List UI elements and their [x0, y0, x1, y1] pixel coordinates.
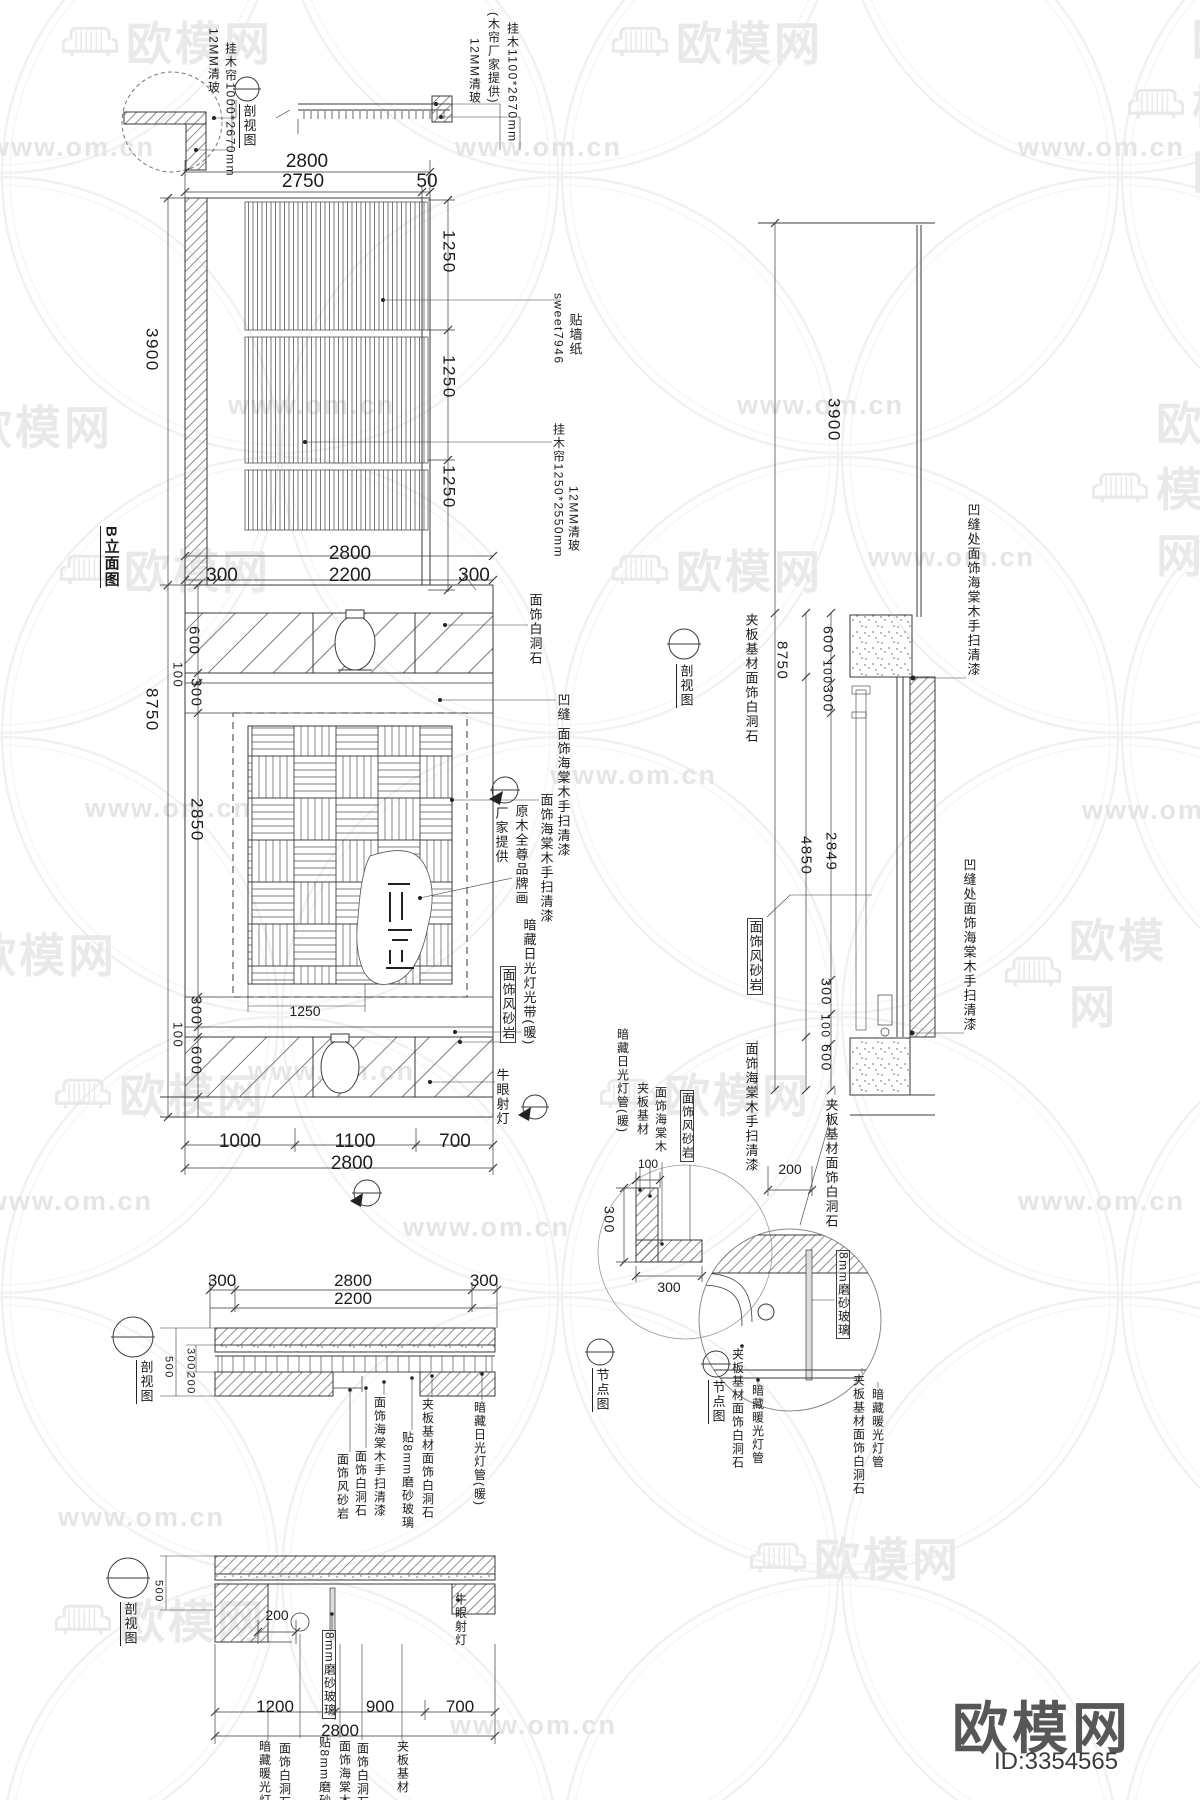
dim: 3900 [143, 328, 161, 372]
glass-label: 12MM清玻 [567, 486, 579, 552]
dim: 300 [206, 566, 238, 586]
material-label: 夹板基材面饰白洞石 [744, 613, 758, 744]
cad-linework [0, 0, 1200, 1800]
dim: 1250 [440, 465, 458, 509]
dim: 500 [152, 1580, 163, 1603]
dim: 300 [821, 685, 836, 713]
material-label: 夹板基材 [396, 1740, 408, 1794]
dim: 8750 [143, 688, 161, 732]
dim: 300 [657, 1280, 680, 1295]
artwork-vendor-label: 厂家提供 [494, 806, 508, 864]
glass-label: 12MM清玻 [207, 28, 219, 94]
material-label: 夹板基材面饰白洞石 [731, 1348, 743, 1470]
light-label: 暗藏日光灯管(暖) [616, 1028, 628, 1134]
dim: 4850 [798, 836, 814, 875]
material-label: 凹缝处面饰海棠木手扫清漆 [966, 503, 980, 677]
dim: 2849 [823, 832, 839, 871]
material-label: 面饰风砂岩 [747, 918, 763, 995]
light-label: 暗藏暖光灯管 [871, 1388, 883, 1469]
dim: 50 [416, 172, 437, 192]
dim: 2200 [329, 566, 371, 586]
curtain-label: 挂木帘1250*2550mm [552, 423, 564, 558]
dim: 200 [778, 1162, 801, 1177]
material-label: 面饰白洞石 [528, 593, 542, 666]
dim: 1100 [335, 1132, 376, 1152]
dim: 900 [366, 1698, 394, 1716]
dim: 300 [470, 1272, 498, 1290]
drawing-title: B立面图 [100, 526, 119, 588]
material-label: 面饰风砂岩 [336, 1453, 348, 1521]
material-label: 夹板基材面饰白洞石 [421, 1398, 433, 1520]
dim: 100 [171, 1022, 185, 1048]
dim: 100 [638, 1158, 658, 1170]
glass-label: 8mm磨砂玻璃 [322, 1630, 336, 1719]
dim: 300 [208, 1272, 236, 1290]
dim: 300 [602, 1206, 617, 1234]
material-label: 贴8mm磨砂玻璃 [401, 1431, 413, 1530]
section-drawing [667, 219, 966, 1115]
dim: 2800 [334, 1272, 372, 1290]
material-label: 面饰海棠木手扫清漆 [539, 793, 553, 924]
light-label: 暗藏日光灯光带(暖) [522, 918, 536, 1046]
detail2-drawing [106, 1556, 499, 1744]
dim: 100 [819, 1014, 831, 1039]
light-label: 暗藏暖光灯管 [751, 1384, 763, 1465]
section-marker-label: 剖视图 [239, 104, 256, 148]
material-label: 面饰白洞石 [278, 1742, 290, 1800]
dim: 1250 [440, 355, 458, 399]
site-id: ID:3354565 [994, 1748, 1118, 1776]
dim: 600 [188, 1046, 204, 1076]
section-marker-label: 剖视图 [120, 1602, 137, 1646]
dim: 300 [184, 1348, 195, 1371]
glass-label: 8mm磨砂玻璃 [836, 1250, 850, 1339]
material-label: 面饰白洞石 [356, 1742, 368, 1800]
curtain-label: 挂木1100*2670mm [506, 22, 518, 143]
dim: 200 [265, 1608, 288, 1623]
elevation-drawing [160, 160, 560, 1207]
dim: 700 [439, 1132, 471, 1152]
material-label: 面饰海棠木 [654, 1086, 666, 1154]
dim: 200 [184, 1372, 195, 1395]
dim: 100 [821, 660, 833, 685]
dim: 500 [162, 1356, 173, 1379]
dim: 2850 [188, 798, 206, 842]
dim: 300 [188, 678, 204, 708]
material-label: 面饰风砂岩 [680, 1090, 694, 1162]
dim: 1200 [256, 1698, 294, 1716]
dim: 2750 [282, 172, 324, 192]
dim: 1250 [289, 1004, 320, 1019]
material-label: 面饰白洞石 [354, 1450, 366, 1518]
material-label: 夹板基材 [636, 1082, 648, 1136]
dim: 2800 [329, 544, 371, 564]
light-label: 暗藏日光灯管(暖) [473, 1401, 485, 1507]
dim: 100 [171, 662, 185, 688]
material-label: 面饰海棠木手扫清漆 [744, 1042, 758, 1173]
material-label: 面饰风砂岩 [500, 966, 516, 1043]
dim: 2800 [331, 1154, 373, 1174]
dim: 300 [458, 566, 490, 586]
dim: 2800 [286, 152, 328, 172]
node-marker-label: 节点图 [592, 1368, 609, 1412]
vendor-label: (木帘厂家提供) [487, 12, 499, 104]
dim: 8750 [774, 641, 790, 680]
dim: 1250 [440, 230, 458, 274]
dim: 300 [819, 978, 834, 1006]
material-label: 夹板基材面饰白洞石 [852, 1374, 864, 1496]
dim: 600 [186, 626, 202, 656]
dim: 700 [446, 1698, 474, 1716]
section-marker-label: 剖视图 [136, 1360, 153, 1404]
dim: 2200 [334, 1290, 372, 1308]
dim: 3900 [825, 398, 843, 442]
artwork-label: 原木全尊品牌画 [514, 804, 528, 906]
curtain-label: 挂木帘1000*2670mm [224, 42, 236, 177]
material-label: 凹缝处面饰海棠木手扫清漆 [962, 858, 976, 1032]
light-label: 牛眼射灯 [495, 1068, 509, 1126]
dim: 600 [819, 1044, 834, 1072]
cad-sheet: 欧模网 欧模网 欧模网 欧模网 欧模网 欧模网 欧模网 欧模网 欧模网 欧模网 … [0, 0, 1200, 1800]
node-marker-label: 节点图 [708, 1380, 725, 1424]
material-label: 面饰海棠木手扫清漆 [373, 1396, 385, 1518]
light-label: 牛眼射灯 [454, 1593, 466, 1647]
material-label: 夹板基材面饰白洞石 [824, 1098, 838, 1229]
material-code: sweet7946 [552, 293, 564, 365]
material-label: 凹缝 面饰海棠木手扫清漆 [556, 693, 570, 858]
glass-label: 12MM清玻 [468, 38, 480, 104]
material-label: 贴8mm磨砂玻璃 [318, 1736, 330, 1800]
light-label: 暗藏暖光灯管 [258, 1740, 270, 1800]
material-label: 面饰海棠木 [338, 1740, 350, 1800]
dim: 300 [188, 996, 204, 1026]
section-marker-label: 剖视图 [676, 664, 693, 708]
material-label: 贴墙纸 [568, 313, 582, 357]
dim: 1000 [219, 1132, 261, 1152]
dim: 600 [821, 626, 836, 654]
